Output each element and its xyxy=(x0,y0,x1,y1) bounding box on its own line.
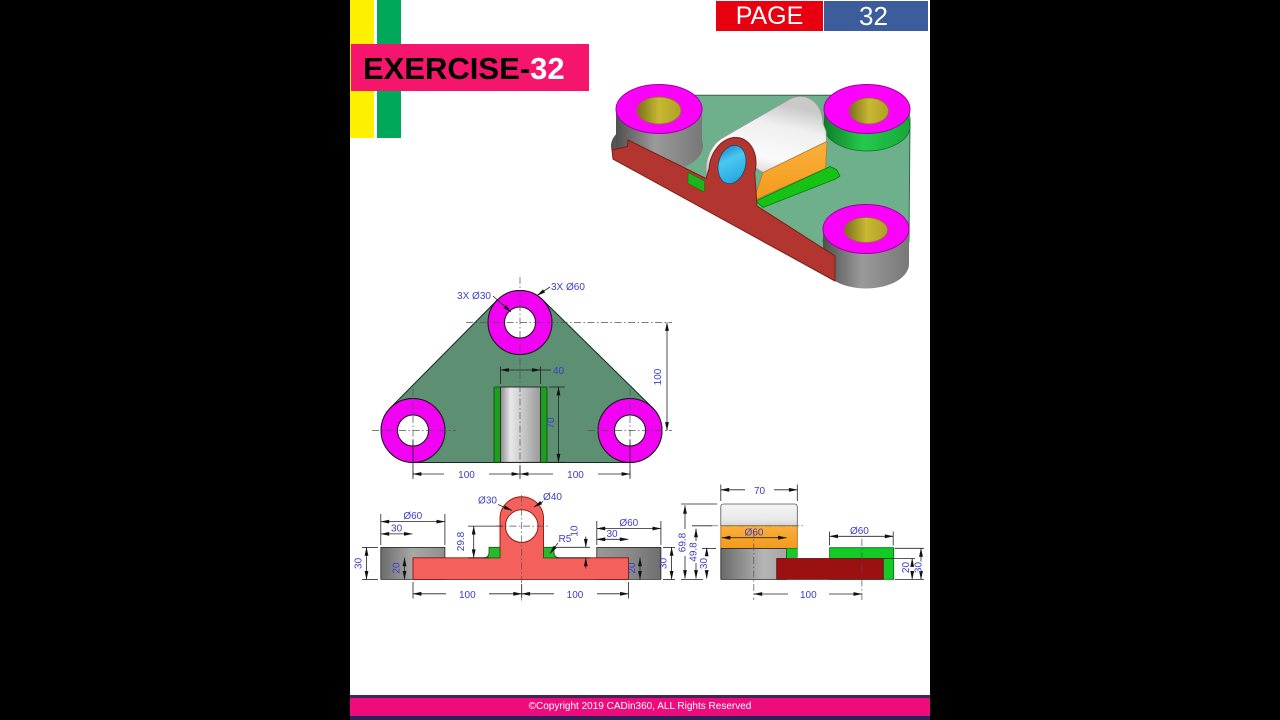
svg-text:30: 30 xyxy=(606,529,618,540)
svg-text:Ø60: Ø60 xyxy=(745,528,764,539)
svg-text:30: 30 xyxy=(914,562,925,574)
svg-text:29.8: 29.8 xyxy=(456,531,467,551)
svg-text:100: 100 xyxy=(800,590,817,601)
svg-text:Ø60: Ø60 xyxy=(403,511,422,522)
svg-text:20: 20 xyxy=(627,562,638,574)
svg-text:20: 20 xyxy=(392,562,403,574)
svg-text:Ø60: Ø60 xyxy=(850,526,869,537)
svg-text:40: 40 xyxy=(553,366,565,377)
svg-text:70: 70 xyxy=(754,486,766,497)
svg-text:100: 100 xyxy=(653,368,664,385)
svg-text:70: 70 xyxy=(546,417,557,429)
svg-text:Ø30: Ø30 xyxy=(478,496,497,507)
svg-text:100: 100 xyxy=(567,590,584,601)
svg-text:100: 100 xyxy=(459,590,476,601)
svg-text:3X Ø30: 3X Ø30 xyxy=(457,291,491,302)
svg-text:30: 30 xyxy=(659,557,670,569)
svg-text:Ø60: Ø60 xyxy=(619,518,638,529)
svg-text:69.8: 69.8 xyxy=(678,532,689,552)
svg-text:Ø40: Ø40 xyxy=(543,492,562,503)
svg-text:30: 30 xyxy=(391,524,403,535)
svg-text:100: 100 xyxy=(567,470,584,481)
svg-text:100: 100 xyxy=(458,470,475,481)
svg-text:3X Ø60: 3X Ø60 xyxy=(551,282,585,293)
svg-text:10: 10 xyxy=(570,525,581,537)
svg-text:20: 20 xyxy=(901,562,912,574)
svg-text:49.8: 49.8 xyxy=(689,542,700,562)
svg-text:30: 30 xyxy=(354,557,365,569)
svg-text:30: 30 xyxy=(699,558,710,570)
